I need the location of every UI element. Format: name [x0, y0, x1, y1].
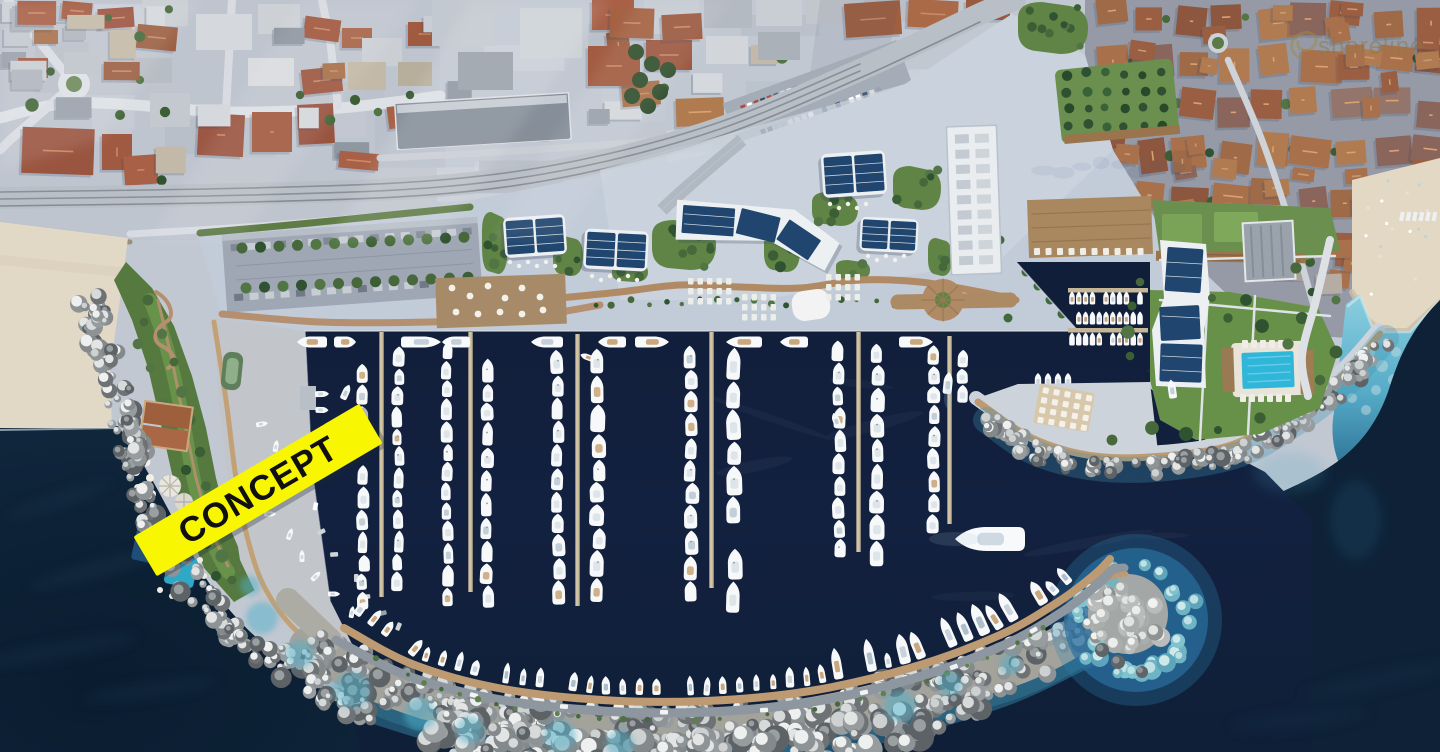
svg-text:shoreline: shoreline	[1318, 33, 1424, 60]
